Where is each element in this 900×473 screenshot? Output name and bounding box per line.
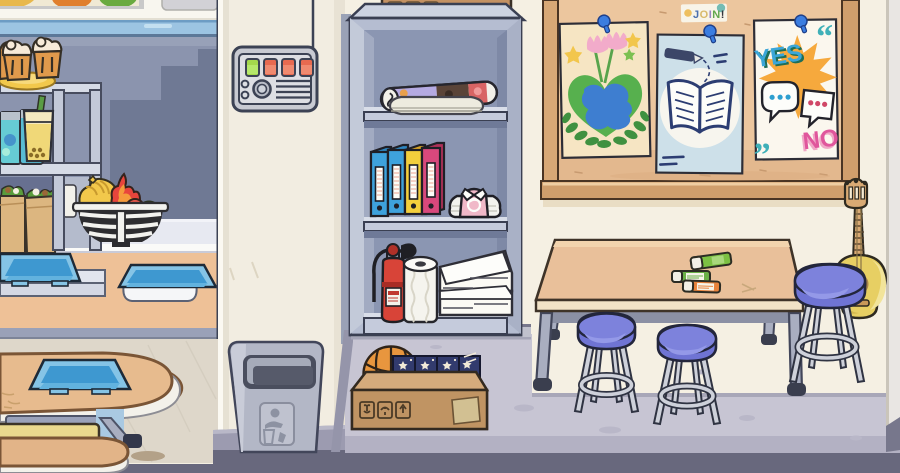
svg-text:NO: NO xyxy=(801,124,840,155)
svg-text:„: „ xyxy=(753,119,771,156)
svg-text:JOIN!: JOIN! xyxy=(693,9,725,21)
svg-text:“: “ xyxy=(816,18,834,55)
